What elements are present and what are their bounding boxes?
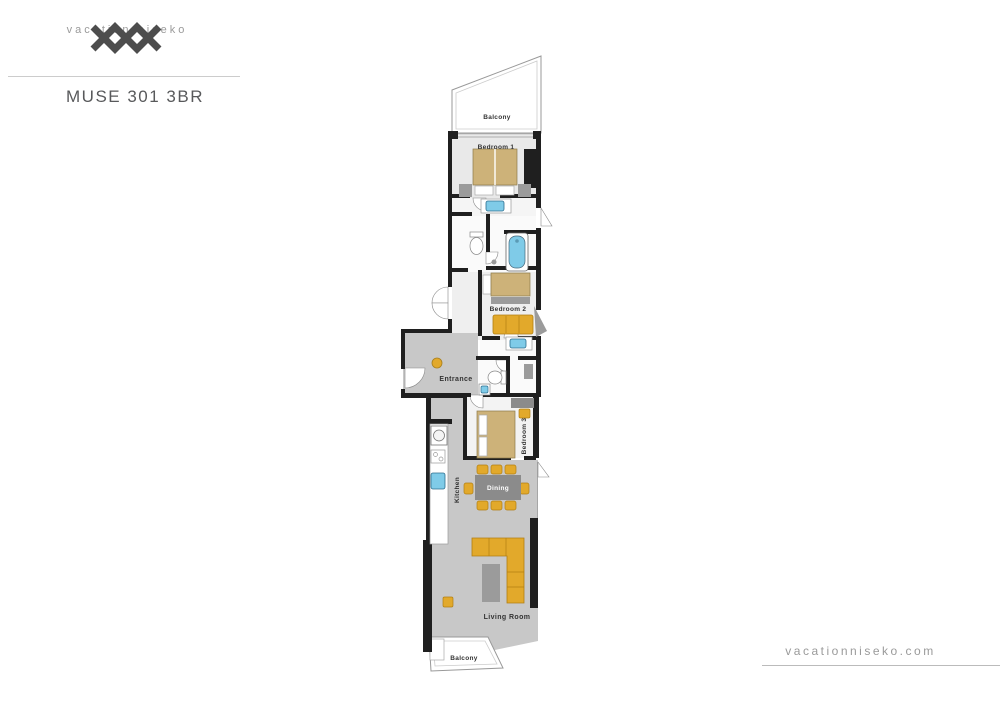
window-wedge-right-upper — [541, 208, 552, 226]
label-living-room: Living Room — [484, 614, 531, 621]
pillow — [496, 186, 514, 195]
dresser — [511, 398, 534, 408]
side-table — [443, 597, 453, 607]
label-balcony-bottom: Balcony — [450, 655, 477, 662]
wc-toilet — [488, 371, 506, 384]
bed — [477, 411, 515, 458]
label-bedroom3: Bedroom 3 — [521, 418, 528, 455]
pillow — [479, 437, 487, 456]
door-left-upper — [432, 287, 448, 303]
coffee-table — [482, 564, 500, 602]
wc-sink — [479, 384, 490, 395]
bathtub — [506, 233, 528, 271]
label-bedroom2: Bedroom 2 — [490, 306, 527, 313]
stool — [519, 409, 530, 418]
sofa-bedroom2 — [493, 315, 533, 334]
vanity-sink — [481, 199, 511, 213]
floorplan: Balcony Bedroom 1 Bedroom 2 Entrance Kit… — [0, 0, 1000, 707]
website-url: vacationniseko.com — [758, 644, 963, 658]
bed — [491, 273, 530, 296]
bed-bench — [491, 297, 530, 304]
hall-sink — [506, 337, 532, 350]
closet — [524, 149, 536, 188]
door-left-lower — [432, 303, 448, 319]
label-kitchen: Kitchen — [454, 477, 461, 503]
stool — [432, 358, 442, 368]
footer-divider — [762, 665, 1000, 666]
nightstand-left — [459, 184, 472, 197]
kitchen-sink — [431, 473, 445, 489]
label-entrance: Entrance — [439, 376, 472, 383]
pillow — [483, 275, 491, 294]
pillow — [479, 415, 487, 435]
label-balcony-top: Balcony — [483, 114, 510, 121]
toilet — [470, 232, 483, 255]
pillow — [475, 186, 493, 195]
wall-diagonal — [534, 306, 547, 337]
nightstand-right — [518, 184, 531, 197]
washer — [431, 426, 447, 445]
kitchen-fixtures — [430, 424, 448, 544]
stove — [431, 450, 445, 463]
shower-unit — [524, 364, 533, 379]
label-bedroom1: Bedroom 1 — [478, 144, 515, 151]
window-wedge-right-dining — [538, 462, 549, 477]
shower-drain — [492, 260, 497, 265]
balcony-top — [452, 56, 541, 133]
label-dining: Dining — [487, 485, 509, 492]
